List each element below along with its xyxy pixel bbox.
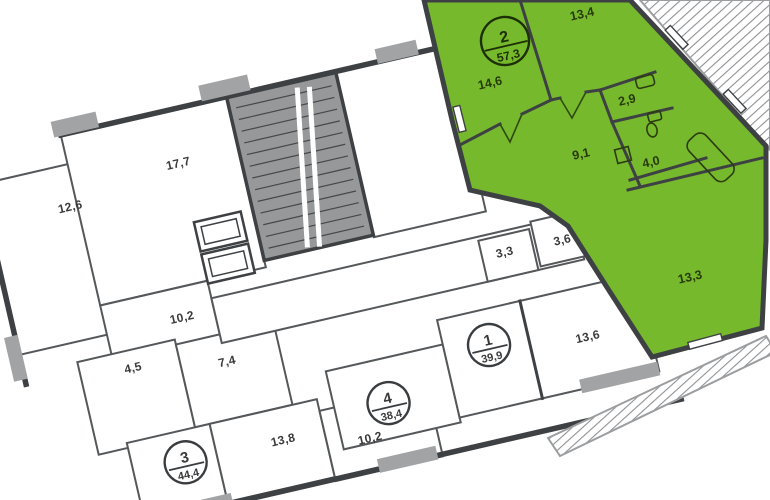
floorplan-screenshot: 17,7 12,6 10,2 4,5 7,4 13,8 10,2 3,3 3,6… [0,0,770,500]
floorplan-svg: 17,7 12,6 10,2 4,5 7,4 13,8 10,2 3,3 3,6… [0,0,770,500]
